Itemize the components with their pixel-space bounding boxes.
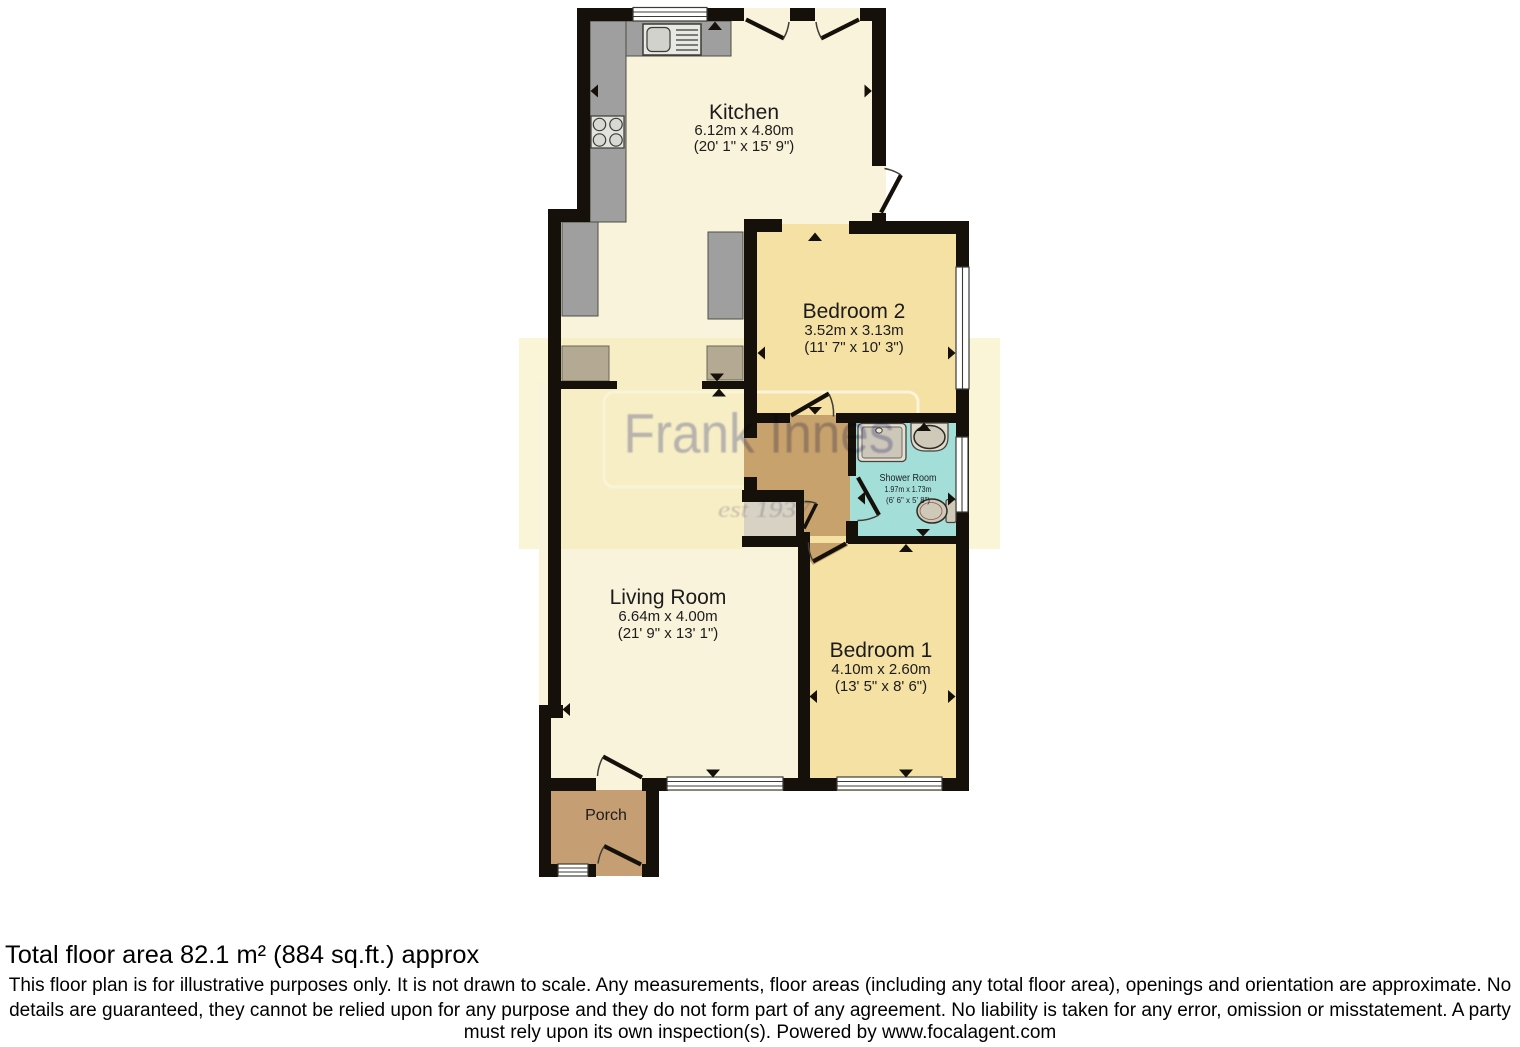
svg-text:(20' 1" x 15' 9"): (20' 1" x 15' 9"): [694, 138, 795, 155]
svg-text:This floor plan is for illustr: This floor plan is for illustrative purp…: [9, 975, 1511, 996]
svg-text:(13' 5" x 8' 6"): (13' 5" x 8' 6"): [835, 678, 927, 695]
svg-text:(6' 6" x 5' 8"): (6' 6" x 5' 8"): [886, 496, 930, 505]
svg-text:Shower Room: Shower Room: [880, 473, 937, 484]
svg-text:est 1937: est 1937: [718, 497, 812, 522]
svg-text:(11' 7" x 10' 3"): (11' 7" x 10' 3"): [804, 339, 903, 356]
svg-text:6.64m x 4.00m: 6.64m x 4.00m: [618, 608, 717, 625]
svg-text:Porch: Porch: [585, 807, 627, 824]
svg-text:details are guaranteed, they c: details are guaranteed, they cannot be r…: [9, 1000, 1511, 1021]
svg-text:4.10m x 2.60m: 4.10m x 2.60m: [831, 661, 930, 678]
svg-text:Total floor area 82.1 m² (884: Total floor area 82.1 m² (884 sq.ft.) ap…: [5, 941, 479, 969]
svg-text:Frank Innes: Frank Innes: [624, 402, 895, 465]
svg-text:Bedroom 2: Bedroom 2: [803, 300, 906, 323]
svg-text:(21' 9" x 13' 1"): (21' 9" x 13' 1"): [618, 625, 719, 642]
svg-text:3.52m x 3.13m: 3.52m x 3.13m: [804, 322, 903, 339]
svg-text:Living Room: Living Room: [610, 586, 727, 609]
svg-text:Bedroom 1: Bedroom 1: [830, 639, 933, 662]
svg-text:must rely upon its own inspect: must rely upon its own inspection(s). Po…: [464, 1022, 1056, 1043]
svg-text:1.97m x 1.73m: 1.97m x 1.73m: [885, 485, 932, 494]
svg-text:6.12m x 4.80m: 6.12m x 4.80m: [694, 122, 793, 139]
svg-text:Kitchen: Kitchen: [709, 101, 779, 124]
